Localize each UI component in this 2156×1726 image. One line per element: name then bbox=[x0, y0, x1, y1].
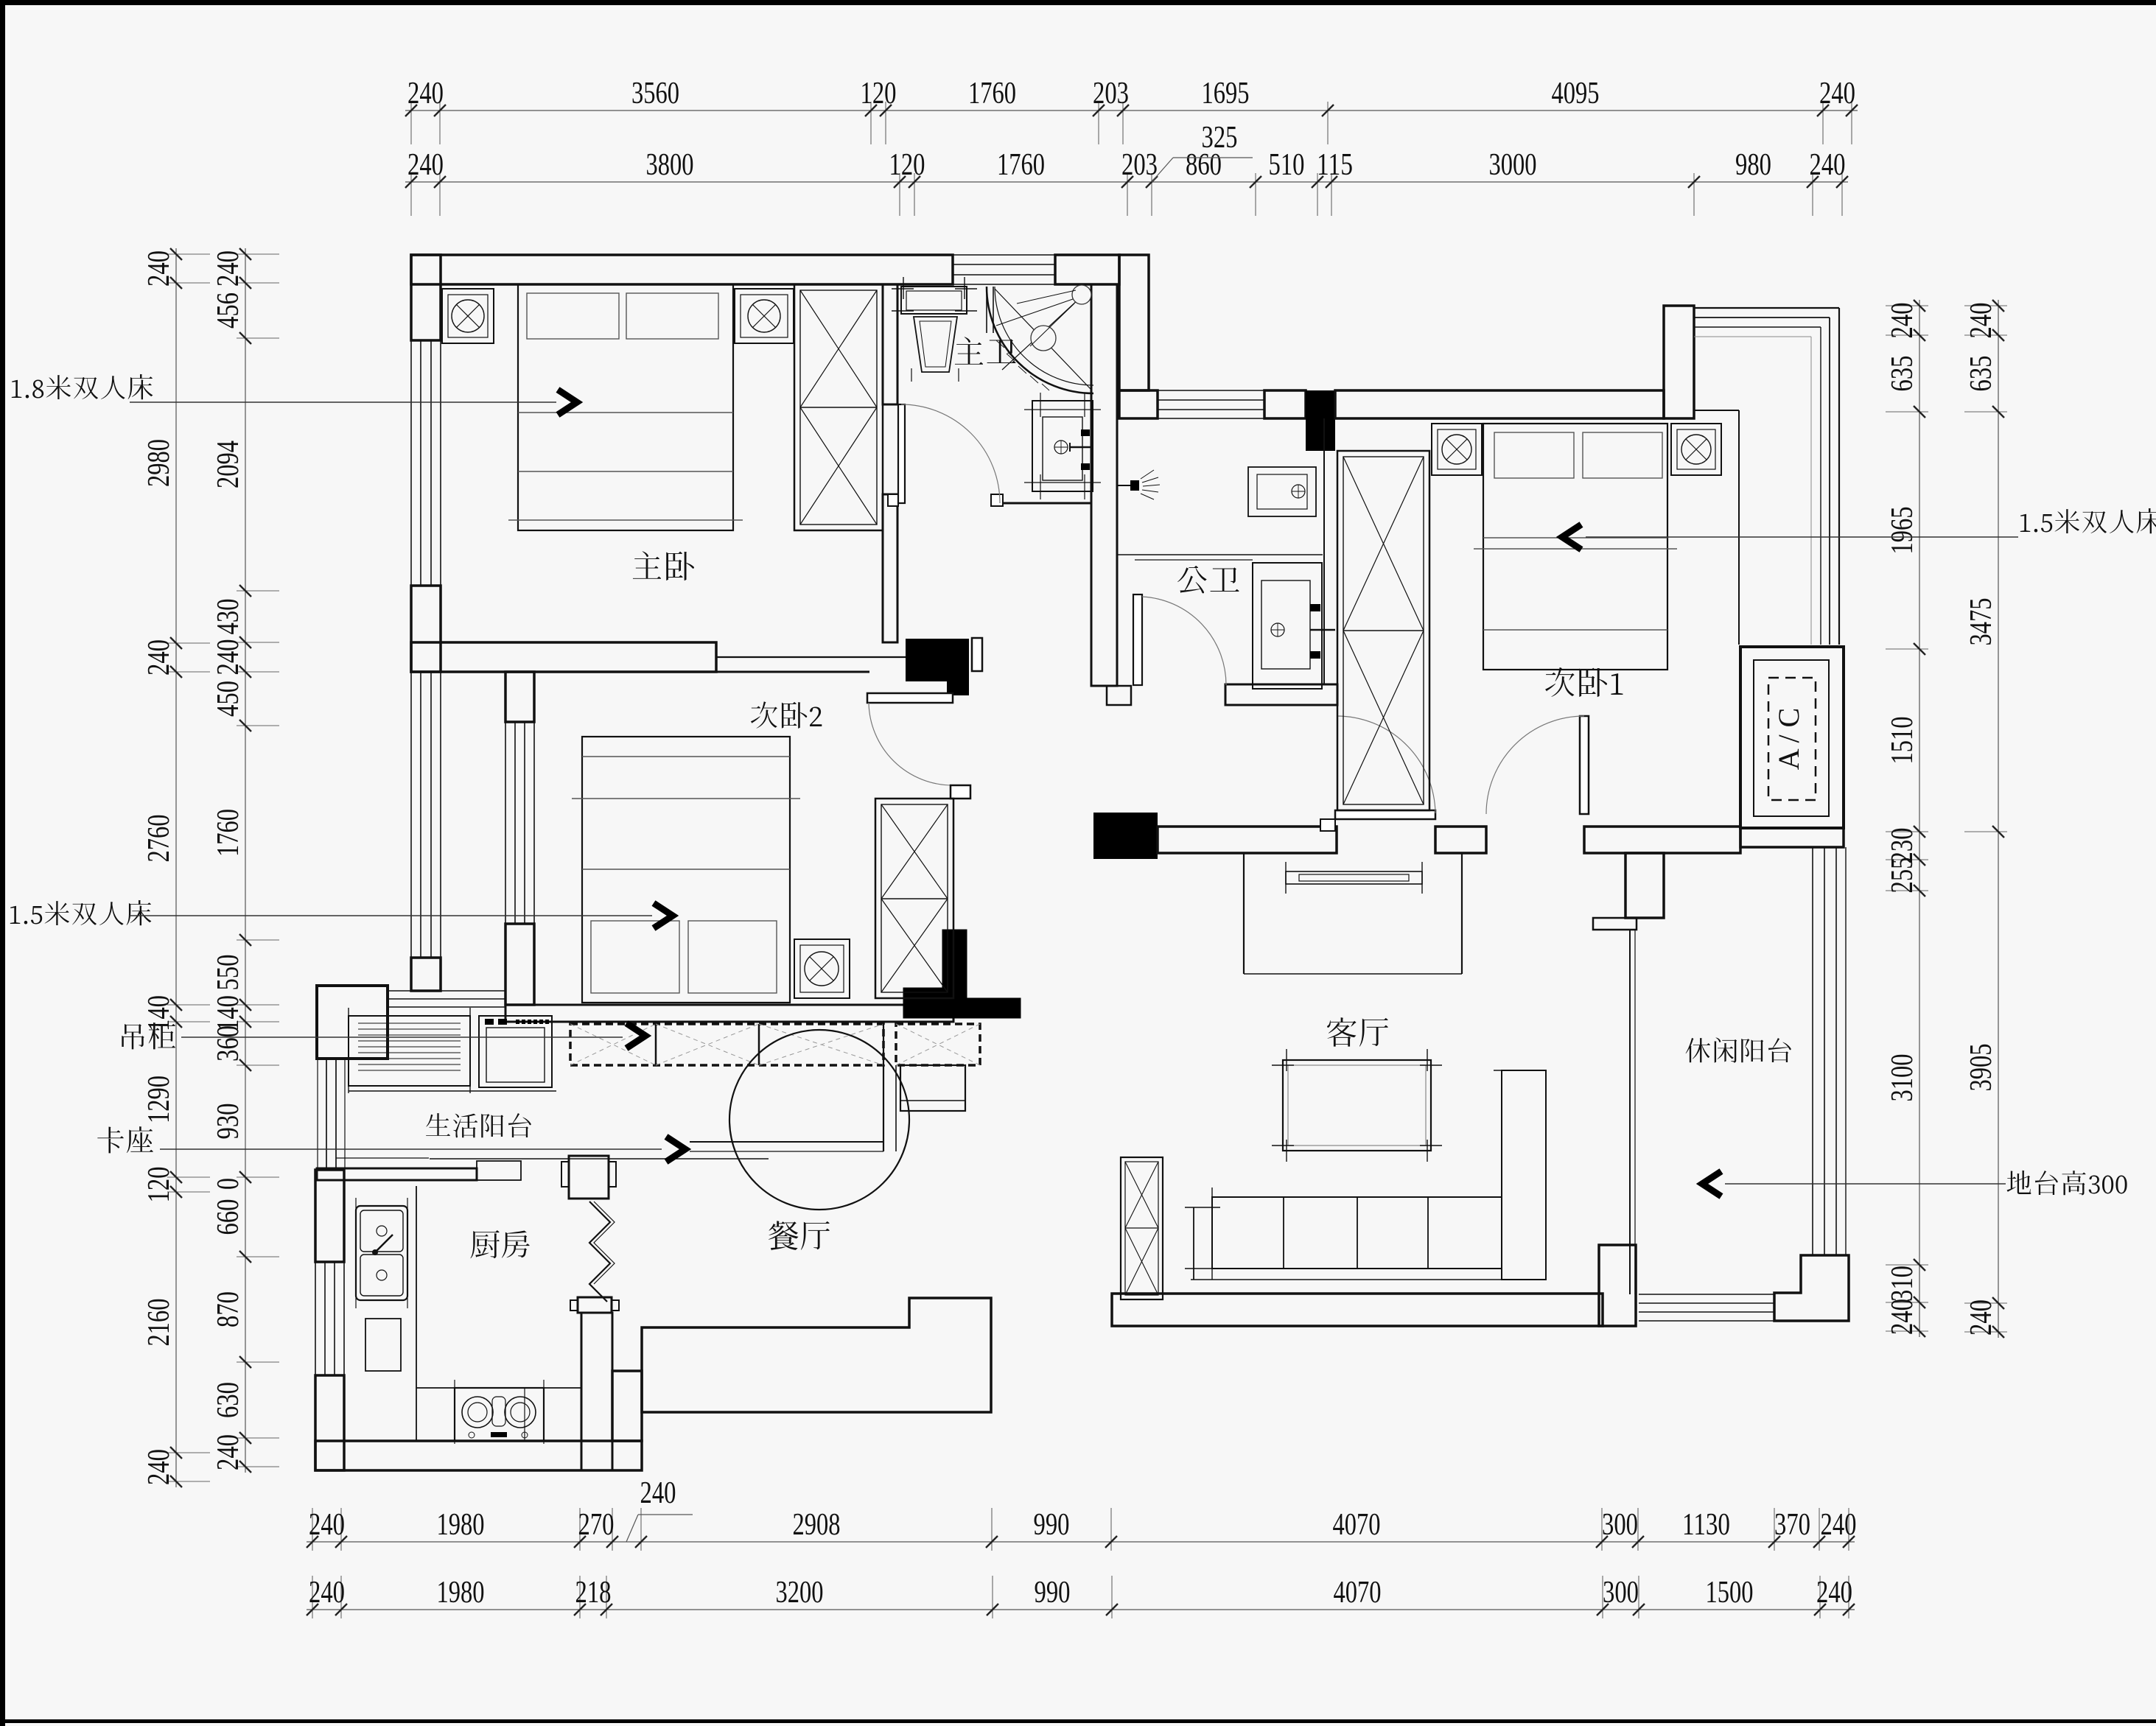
svg-text:203: 203 bbox=[1121, 148, 1158, 182]
svg-text:4095: 4095 bbox=[1552, 77, 1600, 110]
svg-text:240: 240 bbox=[407, 148, 444, 182]
svg-text:240: 240 bbox=[1810, 148, 1846, 182]
svg-text:2160: 2160 bbox=[142, 1299, 176, 1347]
svg-text:240: 240 bbox=[1886, 303, 1919, 339]
svg-text:240: 240 bbox=[1816, 1576, 1852, 1610]
svg-text:240: 240 bbox=[211, 639, 245, 676]
svg-text:300: 300 bbox=[1602, 1508, 1638, 1542]
svg-text:240: 240 bbox=[1819, 77, 1855, 110]
svg-text:240: 240 bbox=[309, 1576, 345, 1610]
svg-text:325: 325 bbox=[1202, 121, 1238, 155]
svg-text:2760: 2760 bbox=[142, 815, 176, 863]
svg-text:1760: 1760 bbox=[968, 77, 1016, 110]
svg-text:450: 450 bbox=[211, 681, 245, 717]
svg-text:1760: 1760 bbox=[211, 809, 245, 857]
svg-text:0: 0 bbox=[211, 1178, 245, 1190]
svg-text:3200: 3200 bbox=[776, 1576, 824, 1610]
svg-text:218: 218 bbox=[575, 1576, 612, 1610]
svg-text:240: 240 bbox=[407, 77, 444, 110]
svg-text:240: 240 bbox=[309, 1508, 345, 1542]
svg-text:635: 635 bbox=[1964, 356, 1998, 392]
svg-text:240: 240 bbox=[640, 1476, 676, 1510]
svg-text:3000: 3000 bbox=[1489, 148, 1537, 182]
svg-text:255: 255 bbox=[1886, 857, 1919, 894]
svg-text:1510: 1510 bbox=[1886, 717, 1919, 765]
svg-text:550: 550 bbox=[211, 955, 245, 991]
svg-text:203: 203 bbox=[1093, 77, 1129, 110]
svg-text:1500: 1500 bbox=[1706, 1576, 1754, 1610]
svg-text:240: 240 bbox=[142, 1449, 176, 1485]
svg-text:4070: 4070 bbox=[1334, 1576, 1382, 1610]
svg-text:1695: 1695 bbox=[1202, 77, 1250, 110]
svg-text:1290: 1290 bbox=[142, 1076, 176, 1123]
svg-text:3905: 3905 bbox=[1964, 1044, 1998, 1092]
svg-text:4070: 4070 bbox=[1333, 1508, 1381, 1542]
svg-text:930: 930 bbox=[211, 1104, 245, 1140]
svg-text:120: 120 bbox=[861, 77, 897, 110]
svg-text:2980: 2980 bbox=[142, 439, 176, 487]
svg-text:360: 360 bbox=[211, 1025, 245, 1062]
svg-text:456: 456 bbox=[211, 292, 245, 329]
svg-text:1965: 1965 bbox=[1886, 507, 1919, 555]
svg-text:310: 310 bbox=[1886, 1266, 1919, 1302]
svg-text:2908: 2908 bbox=[793, 1508, 841, 1542]
svg-text:870: 870 bbox=[211, 1291, 245, 1327]
svg-text:1760: 1760 bbox=[997, 148, 1045, 182]
svg-text:3560: 3560 bbox=[631, 77, 679, 110]
svg-text:3100: 3100 bbox=[1886, 1054, 1919, 1102]
svg-text:1980: 1980 bbox=[437, 1508, 485, 1542]
svg-text:630: 630 bbox=[211, 1382, 245, 1418]
svg-text:240: 240 bbox=[1964, 1299, 1998, 1336]
svg-text:240: 240 bbox=[142, 250, 176, 287]
svg-text:120: 120 bbox=[142, 1167, 176, 1203]
svg-text:430: 430 bbox=[211, 599, 245, 635]
svg-text:990: 990 bbox=[1034, 1508, 1070, 1542]
svg-text:635: 635 bbox=[1886, 356, 1919, 392]
svg-text:1980: 1980 bbox=[437, 1576, 485, 1610]
svg-text:120: 120 bbox=[889, 148, 925, 182]
svg-text:240: 240 bbox=[1886, 1299, 1919, 1335]
svg-text:115: 115 bbox=[1317, 148, 1353, 182]
svg-text:240: 240 bbox=[211, 250, 245, 287]
svg-text:240: 240 bbox=[142, 639, 176, 676]
svg-text:1130: 1130 bbox=[1682, 1508, 1730, 1542]
svg-text:980: 980 bbox=[1735, 148, 1771, 182]
svg-text:2094: 2094 bbox=[211, 441, 245, 488]
svg-text:370: 370 bbox=[1774, 1508, 1810, 1542]
svg-text:240: 240 bbox=[211, 1434, 245, 1470]
svg-text:270: 270 bbox=[578, 1508, 615, 1542]
svg-text:3800: 3800 bbox=[646, 148, 694, 182]
svg-text:510: 510 bbox=[1269, 148, 1305, 182]
svg-text:300: 300 bbox=[1603, 1576, 1639, 1610]
svg-text:990: 990 bbox=[1035, 1576, 1071, 1610]
svg-text:240: 240 bbox=[1964, 303, 1998, 339]
svg-text:A / C: A / C bbox=[1772, 708, 1805, 770]
svg-text:240: 240 bbox=[1821, 1508, 1857, 1542]
svg-text:3475: 3475 bbox=[1964, 598, 1998, 646]
svg-text:660: 660 bbox=[211, 1199, 245, 1235]
